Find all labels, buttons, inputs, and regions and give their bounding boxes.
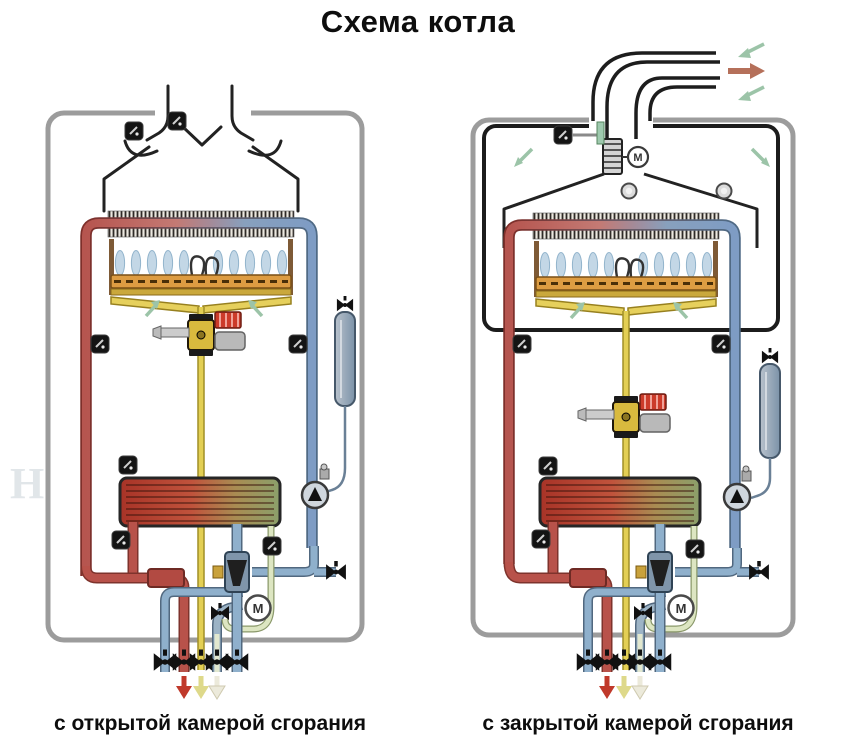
flue-tap	[597, 122, 604, 144]
boiler-schematic-svg: Н Т И	[0, 0, 850, 710]
temperature-sensor-icon	[91, 335, 109, 353]
secondary-heat-exchanger	[540, 478, 700, 526]
temperature-sensor-icon	[119, 456, 137, 474]
flow-arrow-yellow	[616, 686, 632, 699]
flow-arrow-yellow	[193, 686, 209, 699]
flow-arrow-red	[599, 686, 615, 699]
temperature-sensor-icon	[539, 457, 557, 475]
boiler-closed-chamber: M	[473, 44, 793, 699]
flow-arrows	[176, 676, 225, 699]
fan-motor-label: M	[633, 152, 642, 164]
secondary-heat-exchanger	[120, 478, 280, 526]
flow-arrows	[599, 676, 648, 699]
temperature-sensor-icon	[513, 335, 531, 353]
air-intake-arrow	[738, 91, 751, 101]
temperature-sensor-icon	[112, 531, 130, 549]
sight-window-center	[721, 188, 727, 194]
valve-motor-label: M	[676, 601, 687, 616]
caption-open-chamber: с открытой камерой сгорания	[0, 712, 420, 736]
temperature-sensor-icon	[289, 335, 307, 353]
flow-arrow-pale	[632, 686, 648, 699]
flue-outer-wall	[650, 87, 716, 121]
flow-arrow-pale	[209, 686, 225, 699]
temperature-sensor-icon	[712, 335, 730, 353]
draft-sensor-icon	[125, 122, 143, 140]
flow-sensor-icon	[686, 540, 704, 558]
flue-sensor-icon	[554, 126, 572, 144]
sight-window-center	[626, 188, 632, 194]
boiler-open-chamber: M	[48, 86, 362, 699]
exhaust-arrow	[750, 63, 765, 79]
valve-motor-label: M	[253, 601, 264, 616]
pipe-junction	[148, 569, 184, 587]
flow-arrow-red	[176, 686, 192, 699]
flow-sensor-icon	[263, 537, 281, 555]
air-intake-arrow	[738, 48, 751, 58]
temperature-sensor-icon	[532, 530, 550, 548]
draft-sensor-icon	[168, 112, 186, 130]
caption-closed-chamber: с закрытой камерой сгорания	[428, 712, 848, 736]
pipe-junction	[570, 569, 606, 587]
boiler-schematic-page: Схема котла	[0, 0, 850, 752]
flue-arrows	[728, 44, 765, 101]
